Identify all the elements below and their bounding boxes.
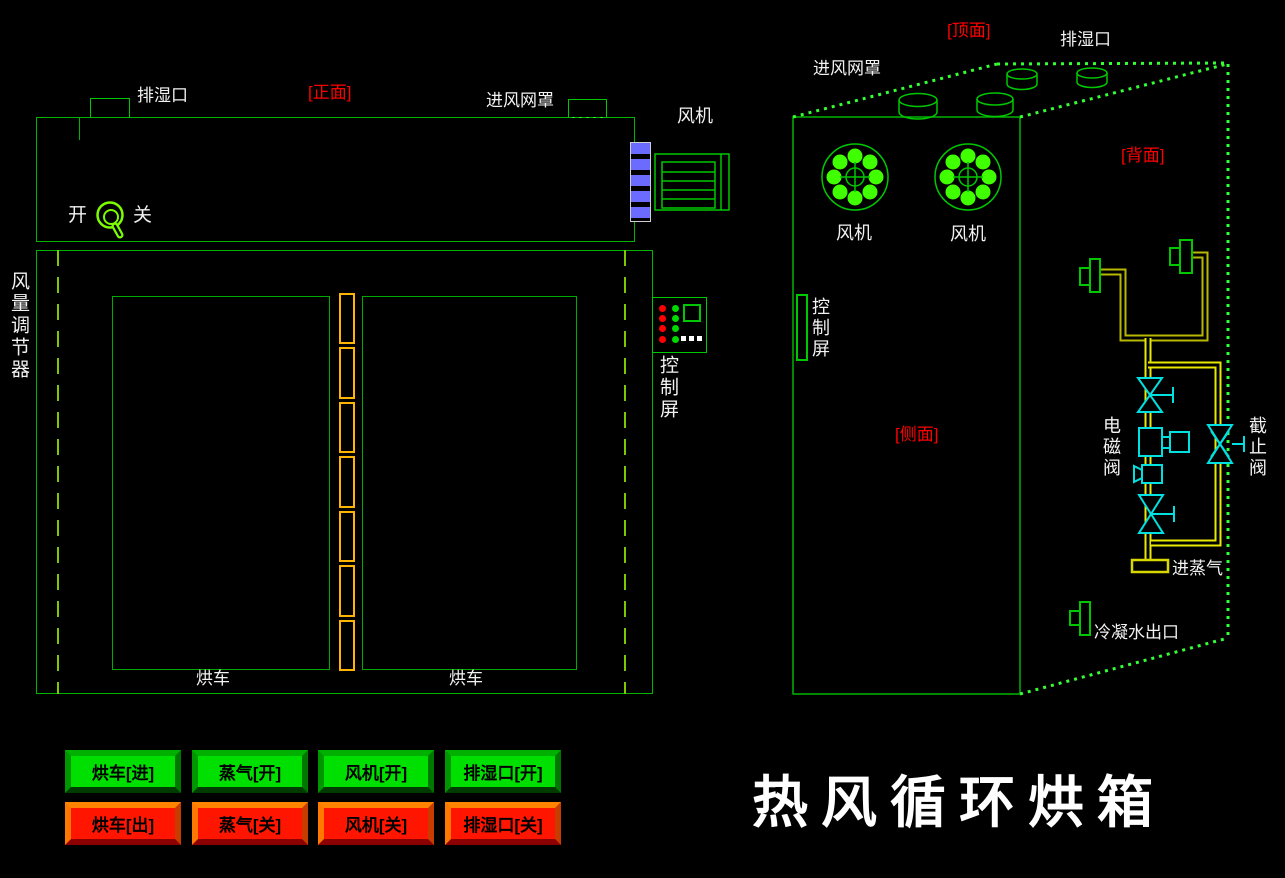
panel-screen <box>683 304 701 322</box>
front-exhaust-label: 排湿口 <box>137 87 188 106</box>
cart-right-label: 烘车 <box>449 670 483 689</box>
door-hinge-strip <box>339 293 355 671</box>
steam-open-button[interactable]: 蒸气[开] <box>192 750 308 793</box>
indicator-red-3 <box>659 325 666 332</box>
inlet-mesh-box <box>568 99 607 118</box>
solenoid-valve-body <box>1134 428 1189 483</box>
steam-inlet-label: 进蒸气 <box>1172 560 1223 579</box>
switch-off-label[interactable]: 关 <box>133 206 152 227</box>
side-exhaust-label: 排湿口 <box>1060 31 1111 50</box>
solenoid-valve-bottom <box>1139 495 1174 533</box>
oven-door-right[interactable] <box>362 296 577 670</box>
side-view-drawing <box>780 15 1285 705</box>
fan-on-button[interactable]: 风机[开] <box>318 750 434 793</box>
cart-in-button[interactable]: 烘车[进] <box>65 750 181 793</box>
hmi-screen: 排湿口 [正面] 进风网罩 风机 开 关 风量调节器 控制屏 烘车 烘车 <box>0 0 1285 878</box>
steam-close-button[interactable]: 蒸气[关] <box>192 802 308 845</box>
fan-louver <box>630 142 651 222</box>
indicator-red-4 <box>659 336 666 343</box>
circulation-fan-1 <box>822 144 888 210</box>
solenoid-valve-label: 电磁阀 <box>1102 416 1120 479</box>
condensate-outlet-label: 冷凝水出口 <box>1094 624 1179 643</box>
side-cabinet-face <box>793 117 1020 694</box>
side-control-screen-label: 控制屏 <box>811 297 829 360</box>
steam-piping <box>1100 255 1218 572</box>
indicator-green-2 <box>672 315 679 322</box>
cart-out-button[interactable]: 烘车[出] <box>65 802 181 845</box>
side-inlet-mesh-label: 进风网罩 <box>813 60 881 79</box>
side-fan2-label: 风机 <box>950 225 986 245</box>
panel-key-3[interactable] <box>697 336 702 341</box>
panel-key-1[interactable] <box>681 336 686 341</box>
steam-inlet-flange <box>1132 560 1168 572</box>
front-control-screen-label: 控制屏 <box>658 355 677 421</box>
control-panel[interactable] <box>652 297 707 353</box>
panel-seam <box>79 117 80 140</box>
indicator-red-1 <box>659 305 666 312</box>
stop-valve <box>1208 425 1244 463</box>
front-face-tag: [正面] <box>308 84 351 103</box>
exhaust-open-button[interactable]: 排湿口[开] <box>445 750 561 793</box>
air-regulator-label: 风量调节器 <box>9 271 28 381</box>
indicator-green-1 <box>672 305 679 312</box>
indicator-red-2 <box>659 315 666 322</box>
back-face-tag: [背面] <box>1121 147 1164 166</box>
top-vent-cylinders <box>899 68 1107 119</box>
exhaust-close-button[interactable]: 排湿口[关] <box>445 802 561 845</box>
power-switch-icon[interactable] <box>93 199 131 241</box>
fan-motor <box>652 151 732 213</box>
inner-dashed-line-left <box>57 250 59 694</box>
circulation-fan-2 <box>935 144 1001 210</box>
switch-on-label[interactable]: 开 <box>68 206 87 227</box>
exhaust-duct <box>90 98 130 118</box>
page-title: 热风循环烘箱 <box>752 758 1166 839</box>
cart-left-label: 烘车 <box>196 670 230 689</box>
front-inlet-mesh-label: 进风网罩 <box>486 92 554 111</box>
fan-off-button[interactable]: 风机[关] <box>318 802 434 845</box>
panel-key-2[interactable] <box>689 336 694 341</box>
side-control-screen <box>797 295 807 360</box>
solenoid-valve-top <box>1138 378 1173 412</box>
top-face-tag: [顶面] <box>947 22 990 41</box>
side-face-tag: [侧面] <box>895 426 938 445</box>
inner-dashed-line-right <box>624 250 626 694</box>
front-fan-label: 风机 <box>677 107 713 127</box>
indicator-green-3 <box>672 325 679 332</box>
indicator-green-4 <box>672 336 679 343</box>
stop-valve-label: 截止阀 <box>1248 416 1266 479</box>
side-fan1-label: 风机 <box>836 224 872 244</box>
oven-door-left[interactable] <box>112 296 330 670</box>
